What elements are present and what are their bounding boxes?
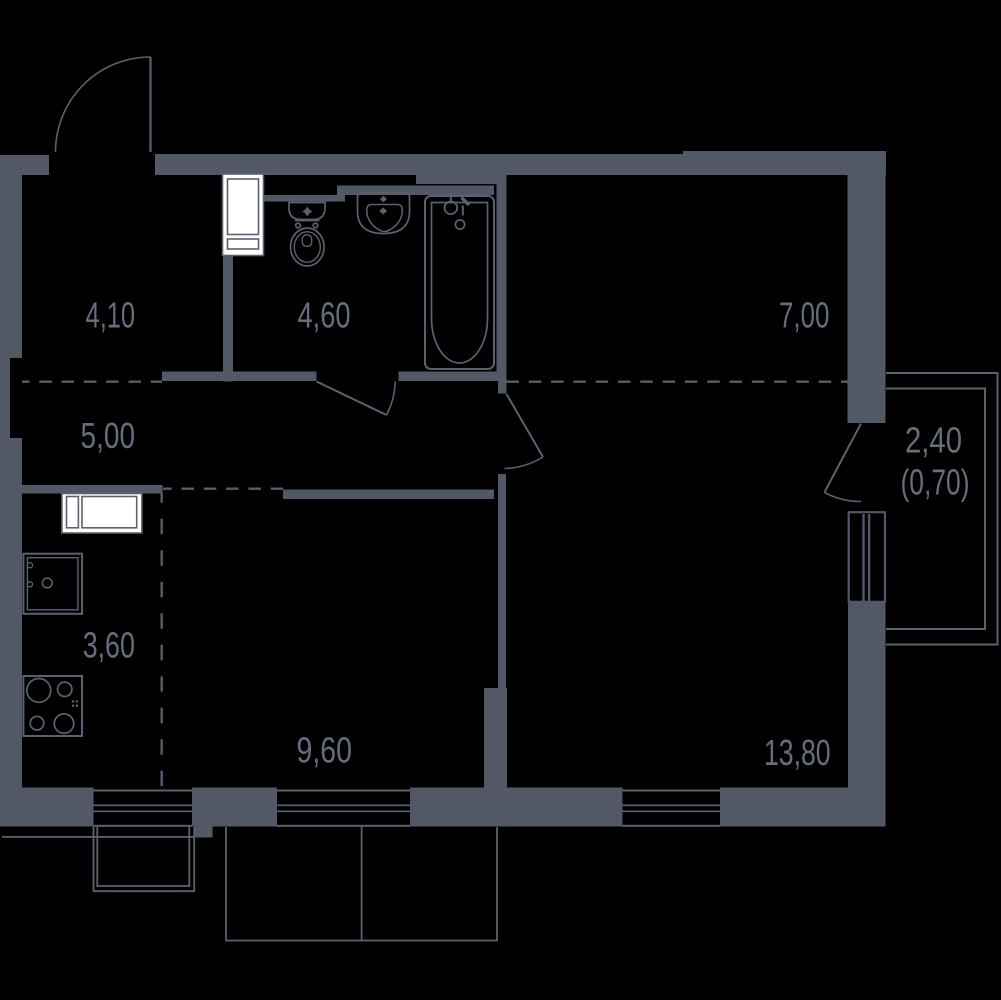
svg-text:7,00: 7,00 <box>779 295 829 336</box>
svg-text:(0,70): (0,70) <box>901 462 970 503</box>
svg-text:4,60: 4,60 <box>298 295 351 336</box>
svg-text:5,00: 5,00 <box>81 415 136 456</box>
svg-text:4,10: 4,10 <box>86 295 136 336</box>
svg-text:3,60: 3,60 <box>83 625 135 666</box>
svg-text:2,40: 2,40 <box>905 420 962 461</box>
svg-text:13,80: 13,80 <box>764 732 831 773</box>
svg-text:9,60: 9,60 <box>297 730 352 771</box>
